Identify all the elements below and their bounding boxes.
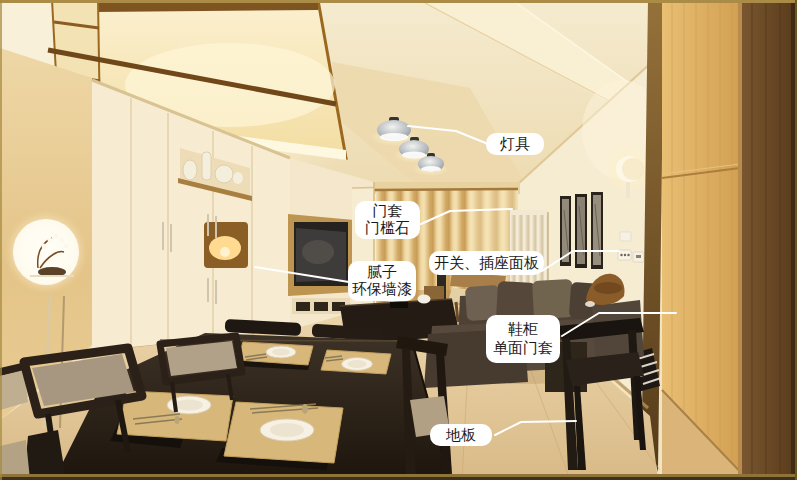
shoe-cabinet bbox=[662, 0, 797, 480]
teapot bbox=[418, 295, 431, 304]
annotation-shoe-cabinet-line2: 单面门套 bbox=[493, 339, 553, 358]
annotation-putty-paint: 腻子 环保墙漆 bbox=[348, 261, 416, 301]
annotation-shoe-cabinet: 鞋柜 单面门套 bbox=[486, 315, 560, 363]
annotation-door-casing-line1: 门套 bbox=[365, 203, 410, 220]
room-photo bbox=[0, 0, 797, 480]
annotation-lighting-text: 灯具 bbox=[500, 135, 530, 153]
vase bbox=[202, 152, 211, 180]
annotation-putty-paint-line1: 腻子 bbox=[352, 264, 412, 281]
vase bbox=[215, 165, 233, 183]
annotation-door-casing: 门套 门槛石 bbox=[355, 201, 420, 239]
wall-art bbox=[560, 192, 603, 269]
annotation-floor-text: 地板 bbox=[446, 426, 476, 444]
vase bbox=[183, 160, 197, 180]
annotation-floor: 地板 bbox=[430, 424, 492, 446]
vase bbox=[233, 172, 243, 184]
annotation-door-casing-line2: 门槛石 bbox=[365, 220, 410, 237]
annotation-lighting: 灯具 bbox=[486, 133, 544, 155]
annotation-putty-paint-line2: 环保墙漆 bbox=[352, 281, 412, 298]
annotation-shoe-cabinet-line1: 鞋柜 bbox=[493, 320, 553, 339]
annotation-switch-socket: 开关、插座面板 bbox=[429, 251, 544, 275]
annotated-interior-photo: 灯具 门套 门槛石 开关、插座面板 腻子 环保墙漆 鞋柜 单面门套 地板 bbox=[0, 0, 797, 480]
annotation-switch-socket-text: 开关、插座面板 bbox=[434, 254, 539, 272]
